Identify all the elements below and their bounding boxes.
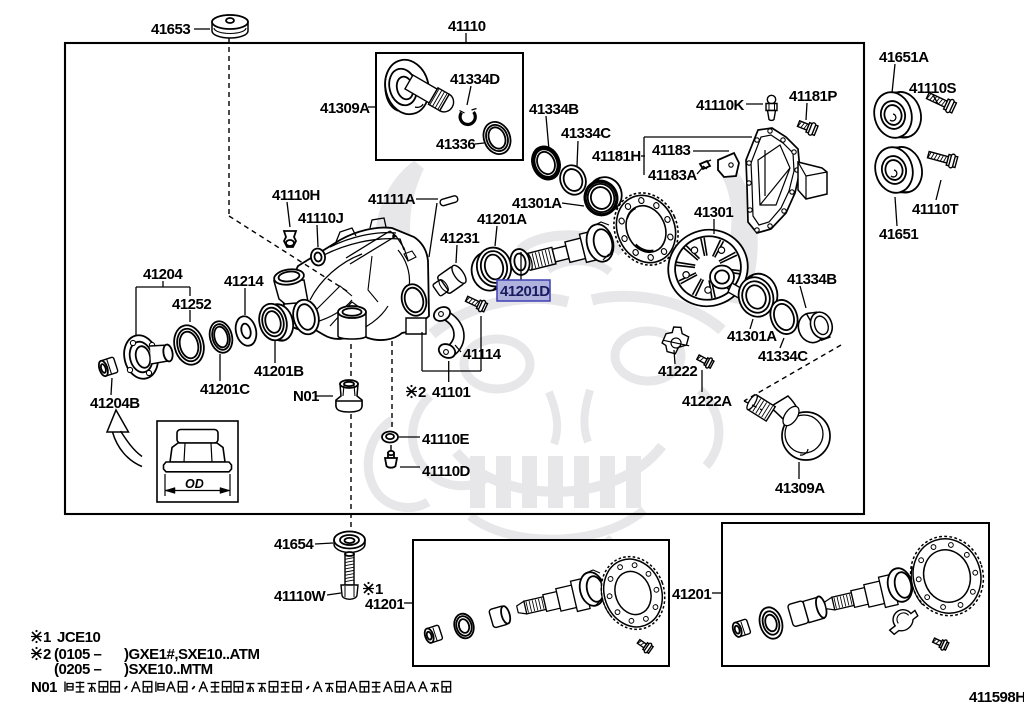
svg-text:41204B: 41204B — [90, 395, 140, 412]
svg-text:41334C: 41334C — [758, 348, 808, 365]
svg-text:1: 1 — [43, 629, 51, 646]
svg-text:41181H: 41181H — [592, 148, 641, 165]
svg-text:41110K: 41110K — [696, 97, 745, 114]
svg-text:41111A: 41111A — [368, 191, 416, 208]
svg-text:41201: 41201 — [672, 586, 711, 603]
svg-text:41110S: 41110S — [909, 80, 957, 97]
svg-text:41114: 41114 — [463, 346, 502, 363]
svg-text:41309A: 41309A — [775, 480, 825, 497]
svg-text:41214: 41214 — [224, 273, 264, 290]
svg-text:41651A: 41651A — [879, 49, 929, 66]
svg-text:2: 2 — [43, 646, 51, 663]
svg-text:41334B: 41334B — [529, 101, 579, 118]
svg-text:41301: 41301 — [694, 204, 733, 221]
svg-text:41110H: 41110H — [272, 187, 320, 204]
svg-text:41252: 41252 — [172, 296, 211, 313]
svg-text:N01: N01 — [293, 388, 319, 405]
svg-text:41336: 41336 — [436, 136, 475, 153]
svg-text:41101: 41101 — [432, 384, 471, 401]
svg-text:41201C: 41201C — [200, 381, 250, 398]
svg-text:41110W: 41110W — [274, 588, 327, 605]
svg-text:41201D: 41201D — [500, 283, 550, 300]
svg-text:41181P: 41181P — [789, 88, 837, 105]
svg-text:41201A: 41201A — [477, 211, 527, 228]
svg-text:41309A: 41309A — [320, 100, 370, 117]
svg-text:41334D: 41334D — [450, 71, 500, 88]
svg-text:41201B: 41201B — [254, 363, 304, 380]
svg-text:41183A: 41183A — [648, 167, 697, 184]
svg-text:(0205 –: (0205 – — [54, 661, 102, 678]
svg-text:41653: 41653 — [151, 21, 190, 38]
svg-text:411598H: 411598H — [969, 689, 1024, 706]
svg-text:41110D: 41110D — [422, 463, 471, 480]
svg-text:41654: 41654 — [274, 536, 314, 553]
svg-text:41110J: 41110J — [298, 210, 344, 227]
svg-text:N01: N01 — [31, 679, 57, 696]
svg-text:41231: 41231 — [440, 230, 479, 247]
svg-text:41222: 41222 — [658, 363, 697, 380]
svg-text:1: 1 — [375, 581, 383, 598]
svg-text:41651: 41651 — [879, 226, 918, 243]
svg-text:41110T: 41110T — [912, 201, 959, 218]
svg-text:41110E: 41110E — [422, 431, 470, 448]
svg-text:)SXE10..MTM: )SXE10..MTM — [124, 661, 213, 678]
svg-text:41183: 41183 — [652, 142, 691, 159]
svg-text:41222A: 41222A — [682, 393, 732, 410]
svg-text:41110: 41110 — [448, 18, 486, 35]
svg-text:JCE10: JCE10 — [57, 629, 101, 646]
svg-text:OD: OD — [185, 477, 204, 491]
svg-text:41301A: 41301A — [512, 195, 562, 212]
svg-text:41334B: 41334B — [787, 271, 837, 288]
svg-text:41301A: 41301A — [727, 328, 777, 345]
svg-text:41201: 41201 — [365, 596, 404, 613]
svg-text:2: 2 — [418, 384, 426, 401]
svg-text:41204: 41204 — [143, 266, 183, 283]
svg-text:41334C: 41334C — [561, 125, 611, 142]
